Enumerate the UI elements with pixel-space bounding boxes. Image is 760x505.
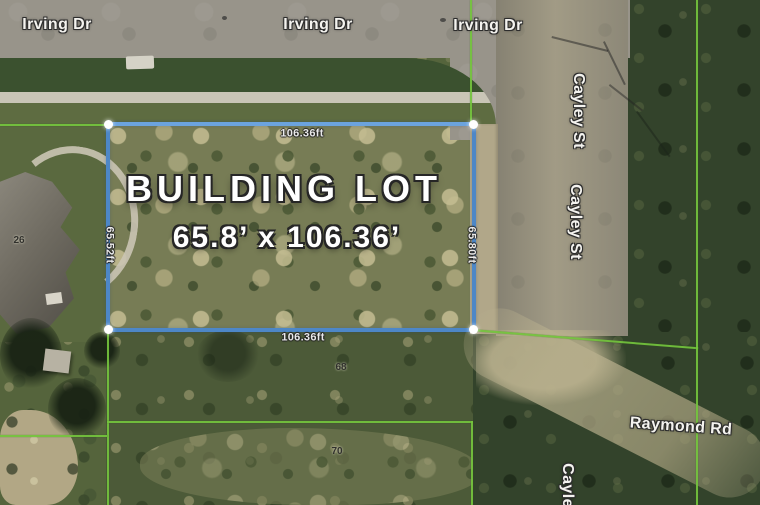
shed-roof (43, 348, 71, 373)
boundary-line (107, 421, 473, 423)
corner-handle-top-left[interactable] (104, 120, 113, 129)
corner-handle-top-right[interactable] (469, 120, 478, 129)
tree-blob (196, 330, 260, 382)
measure-right-label: 65.80ft (466, 227, 477, 264)
boundary-line (0, 124, 108, 126)
tree-blob (48, 378, 106, 440)
street-label-irving-dr-right: Irving Dr (453, 18, 522, 34)
parcel-number-68: 68 (335, 363, 346, 373)
street-label-cayley-st-lower: Cayley St (567, 184, 583, 260)
parked-vehicle (126, 56, 154, 70)
boundary-line (0, 435, 107, 437)
corner-handle-bottom-right[interactable] (469, 325, 478, 334)
boundary-line (471, 421, 473, 505)
street-label-irving-dr-center: Irving Dr (283, 17, 352, 33)
parcel-number-26: 26 (13, 236, 24, 246)
parcel-number-70: 70 (331, 447, 342, 457)
street-label-irving-dr-left: Irving Dr (22, 17, 91, 33)
measure-top-label: 106.36ft (280, 129, 323, 140)
satellite-map[interactable]: 106.36ft 106.36ft 65.52ft 65.80ft Irving… (0, 0, 760, 505)
measure-left-label: 65.52ft (104, 227, 115, 264)
manhole-dot (222, 16, 227, 20)
garage-pad (45, 292, 62, 305)
corner-handle-bottom-left[interactable] (104, 325, 113, 334)
building-lot-dimensions: 65.8’ x 106.36’ (173, 223, 402, 253)
manhole-dot (440, 18, 446, 22)
building-lot-title: BUILDING LOT (126, 171, 442, 207)
street-label-cayley-st-upper: Cayley St (570, 73, 586, 149)
street-label-cayley-st-bottom: Cayley St (559, 463, 575, 505)
roadside-verge (0, 58, 496, 126)
tree-blob (84, 332, 120, 370)
measure-bottom-label: 106.36ft (281, 333, 324, 344)
